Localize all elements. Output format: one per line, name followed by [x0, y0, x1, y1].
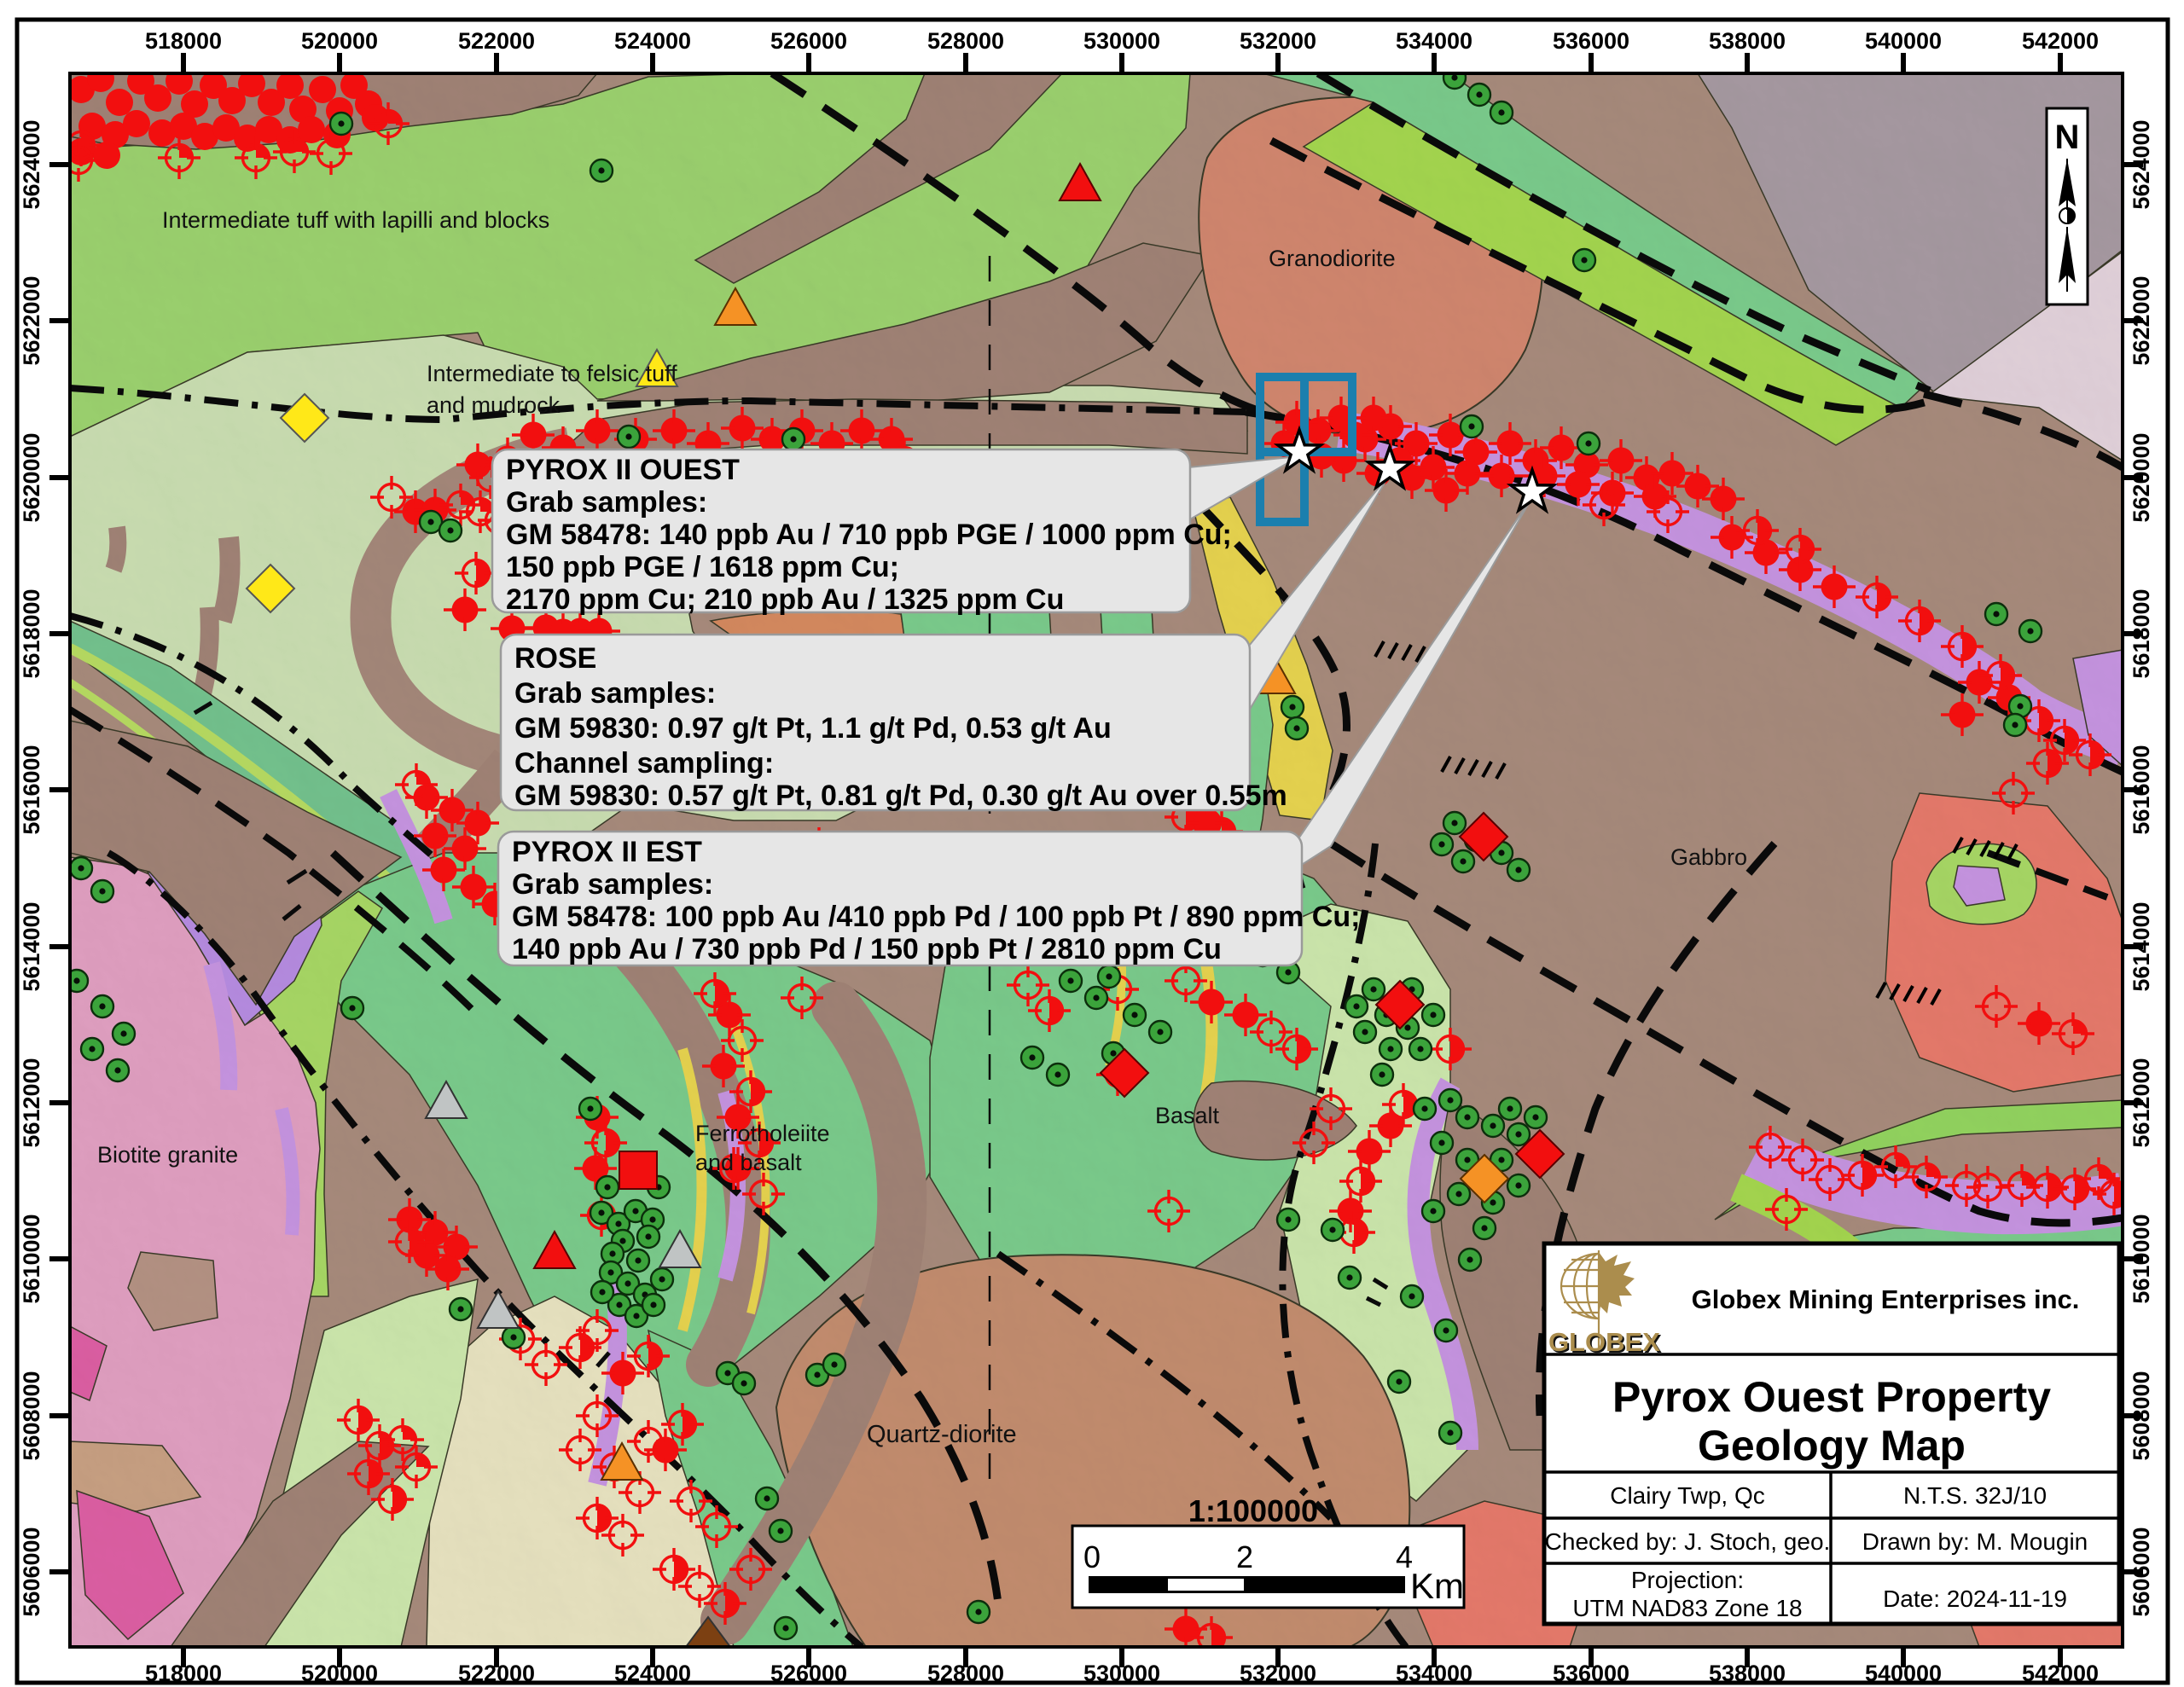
svg-text:Grab samples:: Grab samples:: [514, 677, 716, 710]
svg-text:518000: 518000: [145, 1661, 222, 1686]
svg-text:538000: 538000: [1709, 1661, 1786, 1686]
svg-text:5624000: 5624000: [19, 119, 44, 209]
svg-text:and basalt: and basalt: [695, 1150, 802, 1175]
svg-text:and mudrock: and mudrock: [427, 392, 561, 418]
svg-text:GM 59830: 0.57 g/t Pt, 0.81 g/: GM 59830: 0.57 g/t Pt, 0.81 g/t Pd, 0.30…: [514, 780, 1287, 812]
svg-text:PYROX II OUEST: PYROX II OUEST: [506, 454, 740, 486]
svg-text:GM 58478: 140 ppb Au / 710 ppb: GM 58478: 140 ppb Au / 710 ppb PGE / 100…: [506, 519, 1232, 551]
svg-text:524000: 524000: [614, 1661, 691, 1686]
svg-text:5606000: 5606000: [2129, 1527, 2154, 1616]
svg-text:530000: 530000: [1083, 1661, 1160, 1686]
svg-text:526000: 526000: [770, 1661, 847, 1686]
svg-text:530000: 530000: [1083, 28, 1160, 54]
svg-text:Clairy Twp, Qc: Clairy Twp, Qc: [1610, 1482, 1765, 1509]
svg-text:PYROX II EST: PYROX II EST: [512, 836, 702, 868]
svg-text:5608000: 5608000: [2129, 1371, 2154, 1460]
svg-text:Grab samples:: Grab samples:: [512, 868, 713, 901]
svg-text:Geology Map: Geology Map: [1698, 1422, 1966, 1470]
svg-text:5610000: 5610000: [19, 1214, 44, 1303]
svg-text:534000: 534000: [1396, 28, 1472, 54]
svg-text:GM 58478: 100 ppb Au /410 ppb: GM 58478: 100 ppb Au /410 ppb Pd / 100 p…: [512, 901, 1360, 933]
svg-text:5618000: 5618000: [19, 588, 44, 678]
svg-text:Intermediate tuff with lapilli: Intermediate tuff with lapilli and block…: [162, 207, 549, 233]
svg-text:5610000: 5610000: [2129, 1214, 2154, 1303]
svg-text:520000: 520000: [301, 28, 378, 54]
svg-text:5614000: 5614000: [2129, 901, 2154, 991]
svg-text:N.T.S. 32J/10: N.T.S. 32J/10: [1903, 1482, 2047, 1509]
svg-text:5624000: 5624000: [2129, 119, 2154, 209]
svg-text:Granodiorite: Granodiorite: [1269, 246, 1396, 271]
svg-text:5616000: 5616000: [2129, 745, 2154, 834]
svg-text:ROSE: ROSE: [514, 642, 596, 675]
svg-text:540000: 540000: [1865, 28, 1942, 54]
svg-text:522000: 522000: [458, 28, 535, 54]
svg-text:GM 59830: 0.97 g/t Pt, 1.1 g/t: GM 59830: 0.97 g/t Pt, 1.1 g/t Pd, 0.53 …: [514, 712, 1112, 745]
svg-text:Basalt: Basalt: [1155, 1103, 1220, 1128]
svg-text:140 ppb Au / 730 ppb Pd / 150: 140 ppb Au / 730 ppb Pd / 150 ppb Pt / 2…: [512, 933, 1222, 965]
svg-text:540000: 540000: [1865, 1661, 1942, 1686]
svg-text:526000: 526000: [770, 28, 847, 54]
svg-text:UTM NAD83 Zone 18: UTM NAD83 Zone 18: [1572, 1595, 1802, 1621]
svg-text:536000: 536000: [1553, 28, 1629, 54]
svg-text:0: 0: [1083, 1539, 1101, 1574]
svg-text:5620000: 5620000: [19, 432, 44, 522]
svg-text:522000: 522000: [458, 1661, 535, 1686]
svg-text:Projection:: Projection:: [1631, 1567, 1744, 1593]
svg-text:542000: 542000: [2022, 1661, 2099, 1686]
svg-text:518000: 518000: [145, 28, 222, 54]
svg-text:5620000: 5620000: [2129, 432, 2154, 522]
svg-text:532000: 532000: [1240, 1661, 1316, 1686]
svg-text:Km: Km: [1410, 1566, 1464, 1606]
svg-text:5612000: 5612000: [2129, 1058, 2154, 1147]
svg-text:5608000: 5608000: [19, 1371, 44, 1460]
svg-text:Quartz-diorite: Quartz-diorite: [867, 1421, 1017, 1448]
svg-text:528000: 528000: [927, 28, 1004, 54]
svg-text:Drawn by: M. Mougin: Drawn by: M. Mougin: [1862, 1528, 2088, 1555]
svg-text:Globex Mining Enterprises inc.: Globex Mining Enterprises inc.: [1692, 1284, 2080, 1314]
svg-text:Date: 2024-11-19: Date: 2024-11-19: [1883, 1586, 2067, 1612]
svg-text:Pyrox Ouest Property: Pyrox Ouest Property: [1612, 1373, 2051, 1421]
svg-text:Ferrotholeiite: Ferrotholeiite: [695, 1121, 830, 1146]
svg-text:534000: 534000: [1396, 1661, 1472, 1686]
svg-text:2: 2: [1236, 1539, 1253, 1574]
svg-text:Intermediate to felsic tuff: Intermediate to felsic tuff: [427, 361, 677, 386]
svg-text:2170 ppm Cu; 210 ppb Au / 1325: 2170 ppm Cu; 210 ppb Au / 1325 ppm Cu: [506, 583, 1064, 616]
svg-text:GLOBEX: GLOBEX: [1548, 1327, 1660, 1357]
svg-text:5622000: 5622000: [2129, 275, 2154, 365]
svg-text:5616000: 5616000: [19, 745, 44, 834]
svg-text:1:100000: 1:100000: [1188, 1493, 1318, 1528]
svg-text:Channel sampling:: Channel sampling:: [514, 747, 774, 780]
svg-text:536000: 536000: [1553, 1661, 1629, 1686]
svg-text:Checked by: J. Stoch, geo.: Checked by: J. Stoch, geo.: [1545, 1528, 1831, 1555]
svg-text:542000: 542000: [2022, 28, 2099, 54]
svg-text:Gabbro: Gabbro: [1670, 844, 1747, 870]
svg-text:5614000: 5614000: [19, 901, 44, 991]
svg-text:5622000: 5622000: [19, 275, 44, 365]
svg-text:538000: 538000: [1709, 28, 1786, 54]
svg-text:528000: 528000: [927, 1661, 1004, 1686]
svg-text:5618000: 5618000: [2129, 588, 2154, 678]
svg-text:532000: 532000: [1240, 28, 1316, 54]
svg-text:Grab samples:: Grab samples:: [506, 486, 707, 519]
svg-text:520000: 520000: [301, 1661, 378, 1686]
svg-text:5606000: 5606000: [19, 1527, 44, 1616]
svg-text:Biotite granite: Biotite granite: [97, 1142, 238, 1168]
svg-text:5612000: 5612000: [19, 1058, 44, 1147]
svg-text:150 ppb PGE / 1618 ppm Cu;: 150 ppb PGE / 1618 ppm Cu;: [506, 551, 899, 583]
svg-text:N: N: [2055, 119, 2080, 156]
svg-text:524000: 524000: [614, 28, 691, 54]
